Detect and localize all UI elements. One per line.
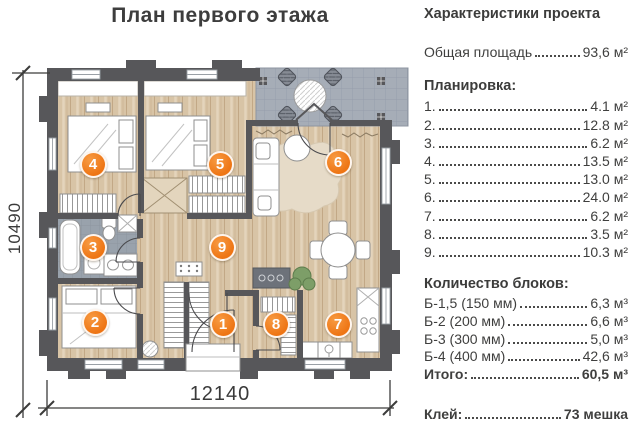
total-area-label: Общая площадь [424, 44, 532, 60]
layout-item: 2.12.8 м² [424, 114, 628, 132]
dotted-leader [508, 324, 587, 326]
dimension-height-label: 10490 [5, 188, 23, 268]
dotted-leader [439, 182, 580, 184]
dotted-leader [439, 164, 580, 166]
layout-item: 6.24.0 м² [424, 187, 628, 205]
wardrobe-icon [60, 194, 116, 213]
window-icon [138, 360, 164, 369]
vanity-icon [104, 254, 137, 276]
terrace [256, 67, 408, 126]
glue-value: 73 мешка [564, 406, 628, 422]
room-badge-6: 6 [325, 149, 352, 176]
window-icon [305, 360, 345, 369]
room-badge-8: 8 [263, 311, 290, 338]
dotted-leader [508, 342, 587, 344]
block-item: Б-2 (200 мм)6,6 м³ [424, 311, 628, 329]
room-badge-5: 5 [207, 151, 234, 178]
plant-pot-icon [142, 341, 158, 357]
blocks-total-row: Итого:60,5 м³ [424, 364, 628, 382]
dotted-leader [520, 306, 587, 308]
layout-item: 1.4.1 м² [424, 96, 628, 114]
entrance-porch [186, 344, 240, 371]
room-badge-3: 3 [80, 234, 107, 261]
dimension-width-label: 12140 [155, 383, 285, 406]
dotted-leader [439, 109, 588, 111]
total-area-row: Общая площадь 93,6 м² [424, 42, 628, 60]
dotted-leader [439, 146, 588, 148]
window-icon [49, 228, 56, 248]
wardrobe-icon [164, 282, 184, 348]
window-icon [382, 288, 390, 324]
dotted-leader [439, 128, 580, 130]
layout-item: 8.3.5 м² [424, 224, 628, 242]
layout-item: 7.6.2 м² [424, 205, 628, 223]
total-area-value: 93,6 м² [583, 44, 628, 60]
window-icon [382, 148, 390, 204]
glue-label: Клей: [424, 406, 462, 422]
bench-icon [176, 262, 202, 276]
shelving-icon [261, 297, 295, 312]
chair-icon [356, 241, 370, 259]
dotted-leader [471, 377, 579, 379]
block-item: Б-1,5 (150 мм)6,3 м³ [424, 294, 628, 312]
characteristics-panel: Характеристики проекта Общая площадь 93,… [424, 6, 628, 422]
layout-section-header: Планировка: [424, 78, 628, 94]
dining-table-icon [321, 233, 355, 267]
glue-row: Клей: 73 мешка [424, 404, 628, 422]
dotted-leader [508, 359, 579, 361]
block-item: Б-4 (400 мм)42,6 м³ [424, 347, 628, 365]
coffee-table-icon [284, 135, 310, 161]
window-icon [49, 298, 56, 330]
window-icon [187, 70, 217, 79]
room-badge-2: 2 [82, 309, 109, 336]
page-title: План первого этажа [70, 4, 370, 28]
dotted-leader [439, 237, 588, 239]
window-icon [72, 70, 100, 79]
floor-plan-page: План первого этажа 1 2 3 4 5 6 7 8 9 121… [0, 0, 632, 433]
dotted-leader [465, 417, 561, 419]
dotted-leader [439, 219, 588, 221]
vestibule-closet-icon [142, 178, 187, 213]
blocks-section-header: Количество блоков: [424, 276, 628, 292]
dotted-leader [535, 55, 579, 57]
layout-item: 4.13.5 м² [424, 151, 628, 169]
room-badge-4: 4 [80, 151, 107, 178]
window-icon [85, 360, 122, 369]
dotted-leader [439, 255, 580, 257]
layout-item: 9.10.3 м² [424, 242, 628, 260]
wardrobe-icon [189, 196, 245, 213]
block-item: Б-3 (300 мм)5,0 м³ [424, 329, 628, 347]
dotted-leader [439, 200, 580, 202]
room-badge-9: 9 [209, 234, 236, 261]
room-badge-1: 1 [210, 311, 237, 338]
toilet-icon [103, 226, 115, 240]
wardrobe-icon [189, 176, 245, 193]
layout-item: 5.13.0 м² [424, 169, 628, 187]
layout-item: 3.6.2 м² [424, 133, 628, 151]
wardrobe-icon [189, 282, 209, 348]
panel-header: Характеристики проекта [424, 6, 628, 22]
room-badge-7: 7 [325, 311, 352, 338]
window-icon [49, 138, 56, 170]
